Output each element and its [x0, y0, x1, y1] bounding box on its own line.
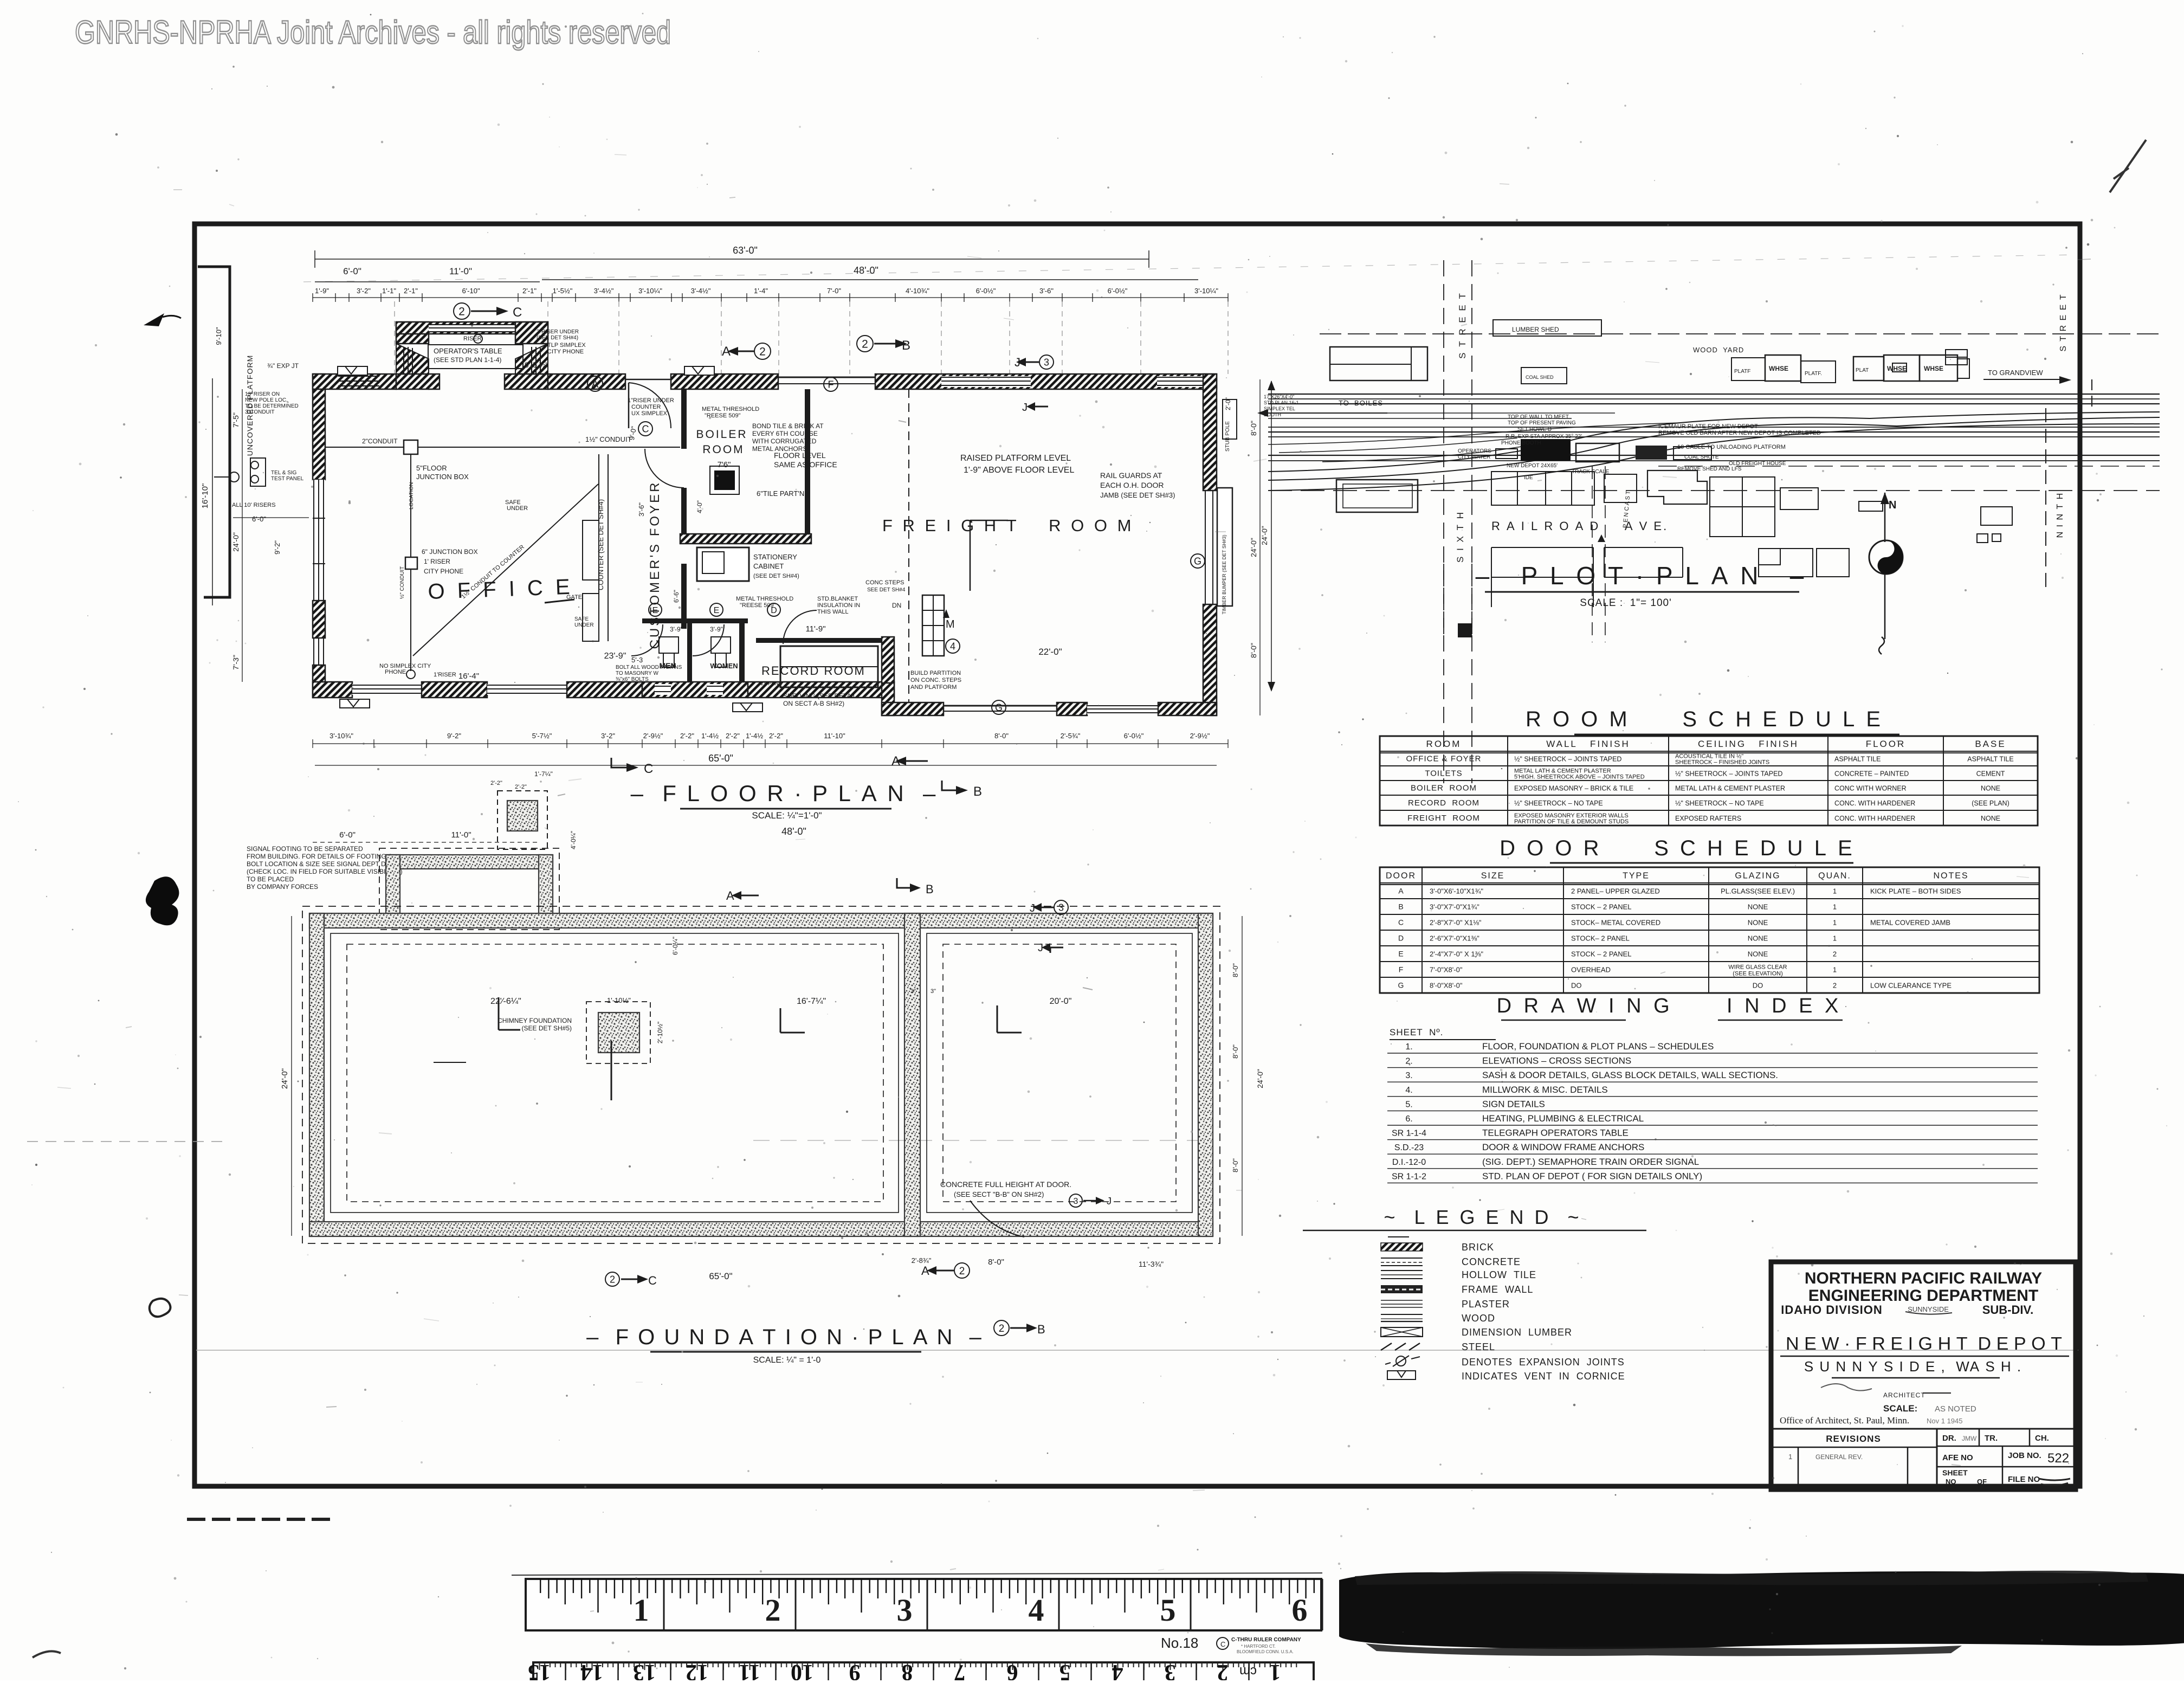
svg-text:3: 3 — [1074, 1197, 1078, 1206]
svg-text:2'-1": 2'-1" — [404, 287, 418, 295]
svg-text:CONC. WITH HARDENER: CONC. WITH HARDENER — [1834, 815, 1915, 822]
svg-text:E: E — [714, 606, 720, 615]
svg-text:SHELVING (SEE DETAIL: SHELVING (SEE DETAIL — [783, 692, 857, 700]
svg-text:SIGNAL FOOTING TO BE SEPARATED: SIGNAL FOOTING TO BE SEPARATED — [247, 845, 363, 853]
svg-text:F: F — [828, 379, 834, 390]
svg-text:1'-1": 1'-1" — [382, 287, 396, 295]
svg-text:TYPE: TYPE — [1623, 872, 1650, 881]
svg-text:10 CABLE TO UNLOADING PLATFORM: 10 CABLE TO UNLOADING PLATFORM — [1677, 444, 1786, 450]
svg-text:CABINET: CABINET — [753, 562, 784, 570]
svg-text:ON SECT A-B SH#2): ON SECT A-B SH#2) — [783, 700, 844, 707]
svg-text:EACH O.H. DOOR: EACH O.H. DOOR — [1100, 481, 1164, 489]
svg-text:6'-0": 6'-0" — [252, 515, 266, 523]
svg-text:SEE DET SH#4: SEE DET SH#4 — [867, 587, 906, 593]
svg-text:5.: 5. — [1405, 1100, 1412, 1109]
svg-text:NONE: NONE — [1748, 903, 1768, 911]
svg-text:CUSTOMER'S FOYER: CUSTOMER'S FOYER — [648, 481, 662, 649]
svg-text:NORTHERN PACIFIC RAILWAY: NORTHERN PACIFIC RAILWAY — [1805, 1269, 2042, 1287]
svg-text:WHSE: WHSE — [1769, 365, 1788, 372]
svg-text:B: B — [926, 882, 934, 896]
svg-text:3"CONDUIT: 3"CONDUIT — [245, 409, 275, 415]
svg-text:1'-4½: 1'-4½ — [746, 732, 763, 740]
svg-text:INSULATION IN: INSULATION IN — [817, 602, 860, 609]
svg-text:4'-0¼": 4'-0¼" — [570, 831, 577, 849]
svg-text:CONC WITH WORNER: CONC WITH WORNER — [1834, 785, 1907, 792]
svg-text:SIGN DETAILS: SIGN DETAILS — [1482, 1099, 1545, 1109]
svg-text:GNRHS-NPRHA Joint Archives - a: GNRHS-NPRHA Joint Archives - all rights … — [75, 14, 671, 50]
svg-text:UNDER: UNDER — [574, 622, 594, 628]
svg-text:J: J — [1022, 402, 1028, 414]
svg-text:AND PLATFORM: AND PLATFORM — [910, 684, 957, 691]
svg-text:AFE NO: AFE NO — [1942, 1453, 1973, 1462]
svg-text:6'-0": 6'-0" — [339, 830, 356, 840]
svg-text:2'-2": 2'-2" — [490, 780, 502, 786]
svg-text:COAL SHED: COAL SHED — [1526, 375, 1554, 380]
svg-text:GENERAL REV.: GENERAL REV. — [1815, 1453, 1863, 1461]
svg-text:ON CONC. STEPS: ON CONC. STEPS — [910, 677, 961, 683]
svg-text:ROOM: ROOM — [702, 443, 744, 456]
svg-text:24'-0": 24'-0" — [231, 532, 240, 552]
svg-text:RAISED PLATFORM LEVEL: RAISED PLATFORM LEVEL — [960, 454, 1071, 463]
svg-text:NONE: NONE — [1748, 934, 1768, 943]
svg-text:OVERHEAD: OVERHEAD — [1571, 966, 1611, 974]
svg-text:3'-2": 3'-2" — [601, 732, 615, 740]
svg-text:3'-10¼": 3'-10¼" — [1194, 287, 1218, 295]
svg-text:SIMPLEX TEL: SIMPLEX TEL — [1264, 406, 1295, 411]
svg-text:ASPHALT TILE: ASPHALT TILE — [1967, 756, 2013, 763]
svg-text:TO BE DETERMINED: TO BE DETERMINED — [245, 403, 299, 409]
svg-text:(SEE PLAN): (SEE PLAN) — [1972, 799, 2009, 807]
svg-text:1.: 1. — [1405, 1042, 1412, 1052]
svg-text:THIS WALL: THIS WALL — [817, 609, 849, 615]
svg-text:½" SHEETROCK – JOINTS TAPED: ½" SHEETROCK – JOINTS TAPED — [1514, 756, 1621, 763]
svg-text:B: B — [973, 784, 982, 799]
svg-text:SAME AS OFFICE: SAME AS OFFICE — [774, 460, 837, 469]
svg-text:G: G — [1398, 981, 1404, 990]
svg-text:SHEETROCK – FINISHED JOINTS: SHEETROCK – FINISHED JOINTS — [1675, 759, 1769, 766]
svg-text:S U N N Y S I D E , WA S H .: S U N N Y S I D E , WA S H . — [1804, 1358, 2022, 1375]
svg-text:22'⁄-6¼": 22'⁄-6¼" — [490, 997, 521, 1006]
svg-text:CITY PHONE: CITY PHONE — [547, 349, 584, 355]
svg-text:13' RISER ON: 13' RISER ON — [245, 391, 280, 397]
svg-text:(SEE DET SH#4): (SEE DET SH#4) — [753, 573, 799, 579]
svg-text:RAIL GUARDS AT: RAIL GUARDS AT — [1100, 471, 1162, 480]
svg-text:9'-2": 9'-2" — [273, 540, 281, 554]
svg-text:NOTES: NOTES — [1933, 872, 1968, 881]
svg-text:1: 1 — [1833, 903, 1837, 911]
svg-text:3'-4½": 3'-4½" — [691, 287, 711, 295]
svg-text:BOILER: BOILER — [696, 428, 747, 441]
svg-text:– P L O T · P L A N –: – P L O T · P L A N – — [1476, 562, 1807, 590]
svg-text:PLAT: PLAT — [1856, 367, 1869, 373]
svg-text:UX SIMPLEX: UX SIMPLEX — [631, 410, 668, 417]
svg-text:OFFICE & FOYER: OFFICE & FOYER — [1406, 755, 1481, 764]
svg-text:G: G — [995, 702, 1003, 713]
svg-text:COUNTER: COUNTER — [631, 404, 661, 410]
svg-text:– F L O O R · P L A N –: – F L O O R · P L A N – — [631, 781, 938, 806]
svg-text:N: N — [1889, 499, 1896, 511]
svg-text:2 PANEL– UPPER GLAZED: 2 PANEL– UPPER GLAZED — [1571, 887, 1660, 895]
svg-text:ALL 10' RISERS: ALL 10' RISERS — [232, 502, 276, 508]
svg-text:JMW: JMW — [1962, 1435, 1977, 1442]
svg-text:4.: 4. — [1405, 1086, 1412, 1095]
svg-text:3'-9": 3'-9" — [670, 626, 683, 633]
svg-text:DOOR: DOOR — [1386, 872, 1416, 881]
svg-text:FILE NO: FILE NO — [2008, 1475, 2040, 1484]
svg-text:7'6": 7'6" — [718, 460, 731, 469]
svg-text:2'-1": 2'-1" — [522, 287, 537, 295]
svg-text:1'-9" ABOVE FLOOR LEVEL: 1'-9" ABOVE FLOOR LEVEL — [964, 466, 1074, 475]
svg-text:FRAME WALL: FRAME WALL — [1462, 1284, 1533, 1295]
svg-text:6'-6": 6'-6" — [673, 590, 680, 603]
svg-text:DO: DO — [1571, 982, 1582, 990]
svg-text:4: 4 — [950, 641, 955, 652]
svg-text:KICK PLATE – BOTH SIDES: KICK PLATE – BOTH SIDES — [1870, 887, 1961, 895]
svg-text:3'-6": 3'-6" — [1039, 287, 1054, 295]
svg-text:SCALE:: SCALE: — [1883, 1403, 1917, 1414]
svg-text:SIZE: SIZE — [1481, 872, 1505, 881]
svg-text:M: M — [946, 618, 955, 630]
svg-text:3'-6": 3'-6" — [637, 502, 645, 517]
svg-text:6: 6 — [1292, 1592, 1308, 1628]
svg-text:O F F I C E: O F F I C E — [428, 575, 574, 604]
svg-text:8'-0": 8'-0" — [1231, 963, 1239, 977]
svg-text:TO BE PLACED: TO BE PLACED — [247, 875, 294, 883]
svg-text:CONCRETE – PAINTED: CONCRETE – PAINTED — [1834, 770, 1909, 778]
svg-text:TIMBER BUMPER (SEE DET SH#3): TIMBER BUMPER (SEE DET SH#3) — [1222, 535, 1227, 615]
svg-text:5'-3: 5'-3 — [631, 656, 643, 664]
svg-text:6.: 6. — [1405, 1114, 1412, 1124]
svg-text:WOOD: WOOD — [1462, 1313, 1495, 1324]
svg-text:48'-0": 48'-0" — [781, 826, 806, 837]
svg-text:STOCK – 2 PANEL: STOCK – 2 PANEL — [1571, 903, 1632, 911]
svg-text:8'-0": 8'-0" — [1249, 643, 1258, 658]
svg-text:⅜"x6" BOLTS: ⅜"x6" BOLTS — [616, 676, 649, 682]
svg-text:1'-5½": 1'-5½" — [553, 287, 573, 295]
svg-text:2: 2 — [1833, 982, 1837, 990]
svg-text:J: J — [1038, 942, 1043, 954]
svg-text:6'-0½": 6'-0½" — [976, 287, 996, 295]
svg-text:3'-10¾": 3'-10¾" — [329, 732, 353, 740]
svg-text:TOP OF PRESENT PAVING: TOP OF PRESENT PAVING — [1508, 420, 1576, 426]
svg-text:SCALE: ¼" = 1'-0: SCALE: ¼" = 1'-0 — [753, 1356, 821, 1365]
svg-text:¾" EXP JT: ¾" EXP JT — [267, 362, 299, 370]
svg-text:4'-0": 4'-0" — [696, 500, 703, 513]
svg-text:METAL THRESHOLD: METAL THRESHOLD — [702, 406, 759, 412]
svg-text:2'-0": 2'-0" — [1224, 397, 1232, 410]
svg-text:N I N T H: N I N T H — [2056, 492, 2065, 538]
svg-text:CH.: CH. — [2035, 1434, 2049, 1443]
svg-text:* HARTFORD CT.: * HARTFORD CT. — [1241, 1644, 1276, 1649]
svg-text:20'-0": 20'-0" — [1050, 997, 1072, 1006]
svg-text:NONE: NONE — [1981, 815, 2000, 822]
svg-text:1½" CONDUIT: 1½" CONDUIT — [585, 435, 632, 443]
svg-text:8'-0": 8'-0" — [1249, 421, 1258, 436]
svg-text:COAL SHUTE: COAL SHUTE — [1684, 454, 1719, 460]
svg-text:BRICK: BRICK — [1462, 1242, 1494, 1253]
svg-text:ICEMAUR PLATE FOR NEW DEPOT: ICEMAUR PLATE FOR NEW DEPOT — [1658, 423, 1758, 430]
svg-text:6'-0¼": 6'-0¼" — [671, 937, 679, 955]
svg-text:2: 2 — [999, 1323, 1005, 1334]
svg-text:G: G — [1194, 556, 1201, 566]
svg-text:"REESE 509": "REESE 509" — [740, 602, 776, 609]
svg-text:8'-0": 8'-0" — [1231, 1158, 1239, 1172]
svg-text:CONCRETE FULL HEIGHT AT DO: CONCRETE FULL HEIGHT AT DOOR. — [940, 1180, 1071, 1189]
svg-text:TOP OF WALL TO MEET: TOP OF WALL TO MEET — [1508, 414, 1569, 420]
svg-text:NEW DEPOT 24X65′: NEW DEPOT 24X65′ — [1507, 463, 1558, 469]
svg-text:3.: 3. — [1405, 1071, 1412, 1080]
svg-text:JOB NO.: JOB NO. — [2008, 1451, 2041, 1460]
svg-text:FLOOR, FOUNDATION & PLOT PLAN: FLOOR, FOUNDATION & PLOT PLANS – SCHEDUL… — [1482, 1041, 1714, 1052]
svg-text:BOND TILE & BRICK AT: BOND TILE & BRICK AT — [752, 422, 824, 430]
svg-text:B: B — [1398, 902, 1403, 911]
svg-text:BOOTH: BOOTH — [1264, 412, 1281, 417]
svg-text:BOLT ALL WOOD PARTNS: BOLT ALL WOOD PARTNS — [616, 665, 682, 670]
svg-text:5: 5 — [1160, 1592, 1176, 1628]
svg-text:C: C — [513, 305, 522, 320]
svg-text:CITY PHONE: CITY PHONE — [424, 568, 463, 575]
svg-text:6" JUNCTION BOX: 6" JUNCTION BOX — [422, 548, 478, 556]
svg-text:D.I.-12-0: D.I.-12-0 — [1392, 1158, 1426, 1167]
svg-text:INDICATES VENT IN CORNICE: INDICATES VENT IN CORNICE — [1462, 1371, 1625, 1382]
svg-text:9'-2": 9'-2" — [447, 732, 461, 740]
svg-text:6'-0": 6'-0" — [343, 266, 361, 276]
svg-text:16'-4": 16'-4" — [458, 672, 479, 681]
svg-text:NO: NO — [1946, 1478, 1956, 1486]
svg-text:DENOTES EXPANSION JOINTS: DENOTES EXPANSION JOINTS — [1462, 1357, 1625, 1368]
svg-text:CONC. WITH HARDENER: CONC. WITH HARDENER — [1834, 799, 1915, 807]
svg-text:OPERATOR'S TABLE: OPERATOR'S TABLE — [434, 347, 502, 355]
svg-text:2'-5¾": 2'-5¾" — [1061, 732, 1081, 740]
svg-text:F R E I G H T R O O M: F R E I G H T R O O M — [882, 516, 1134, 535]
svg-text:IDE: IDE — [1524, 475, 1533, 481]
svg-text:RECORD ROOM: RECORD ROOM — [1408, 798, 1479, 808]
svg-text:2'-9½": 2'-9½" — [643, 732, 663, 740]
svg-text:6'-0½": 6'-0½" — [1108, 287, 1128, 295]
svg-text:65'-0": 65'-0" — [709, 1271, 732, 1281]
svg-text:FLOOR: FLOOR — [1866, 739, 1906, 749]
svg-text:AS NOTED: AS NOTED — [1935, 1404, 1976, 1414]
svg-text:4'-10¾": 4'-10¾" — [906, 287, 929, 295]
svg-text:(SEE ELEVATION): (SEE ELEVATION) — [1733, 971, 1783, 977]
svg-text:C-THRU RULER COMPANY: C-THRU RULER COMPANY — [1231, 1637, 1301, 1643]
svg-text:23'-9": 23'-9" — [604, 652, 626, 661]
svg-text:½" SHEETROCK – NO TAPE: ½" SHEETROCK – NO TAPE — [1514, 799, 1603, 807]
svg-text:METAL THRESHOLD: METAL THRESHOLD — [736, 596, 793, 602]
svg-text:DOOR & WINDOW FRAME ANCHORS: DOOR & WINDOW FRAME ANCHORS — [1482, 1142, 1644, 1152]
svg-text:STEEL: STEEL — [1462, 1342, 1495, 1352]
svg-text:ENGINEERING DEPARTMENT: ENGINEERING DEPARTMENT — [1808, 1287, 2038, 1305]
svg-text:ARCHITECT: ARCHITECT — [1883, 1391, 1925, 1399]
svg-text:2: 2 — [610, 1274, 615, 1285]
svg-text:LOW CLEARANCE TYPE: LOW CLEARANCE TYPE — [1870, 982, 1952, 990]
svg-text:7'-0"X8'-0": 7'-0"X8'-0" — [1430, 966, 1463, 974]
svg-text:6'-0½": 6'-0½" — [1124, 732, 1144, 740]
svg-text:PHONE: PHONE — [385, 669, 406, 675]
svg-text:1'-7¼": 1'-7¼" — [534, 770, 553, 778]
svg-text:12x PANE: 12x PANE — [758, 681, 783, 687]
svg-text:2: 2 — [458, 306, 465, 318]
svg-text:SR 1-1-4: SR 1-1-4 — [1392, 1129, 1426, 1138]
svg-text:A: A — [1398, 887, 1404, 895]
svg-text:BY COMPANY FORCES: BY COMPANY FORCES — [247, 883, 318, 891]
svg-text:1: 1 — [1833, 934, 1837, 943]
svg-text:1: 1 — [1833, 966, 1837, 974]
svg-text:1: 1 — [1833, 919, 1837, 927]
svg-text:STOCK– 2 PANEL: STOCK– 2 PANEL — [1571, 934, 1630, 943]
svg-text:CHIMNEY FOUNDATION: CHIMNEY FOUNDATION — [497, 1017, 572, 1024]
svg-text:SHEET: SHEET — [1942, 1468, 1968, 1477]
svg-text:REVISIONS: REVISIONS — [1826, 1434, 1881, 1444]
svg-text:F: F — [1399, 965, 1404, 974]
svg-text:24'-0": 24'-0" — [1256, 1069, 1264, 1088]
svg-text:6'-10": 6'-10" — [462, 287, 480, 295]
svg-text:11'-0": 11'-0" — [451, 830, 471, 840]
svg-text:24'-0": 24'-0" — [1249, 538, 1258, 557]
svg-text:TO MASONRY W: TO MASONRY W — [616, 670, 658, 676]
svg-text:R A I L R O A D A V E.: R A I L R O A D A V E. — [1491, 519, 1668, 533]
svg-text:1' RISER: 1' RISER — [424, 558, 450, 565]
svg-text:R.R. EXP STA APPROX 35° 22′: R.R. EXP STA APPROX 35° 22′ — [1505, 434, 1582, 440]
svg-text:SUB-DIV.: SUB-DIV. — [1982, 1303, 2034, 1317]
svg-text:3'-2": 3'-2" — [357, 287, 371, 295]
svg-text:EXPOSED MASONRY – BRICK & TILE: EXPOSED MASONRY – BRICK & TILE — [1514, 785, 1633, 792]
svg-text:2"CONDUIT: 2"CONDUIT — [362, 437, 398, 445]
svg-text:3'-9": 3'-9" — [710, 626, 723, 633]
svg-text:PLATF.: PLATF. — [1805, 371, 1822, 377]
svg-text:STD.BLANKET: STD.BLANKET — [817, 596, 858, 602]
svg-text:B: B — [902, 338, 910, 353]
svg-text:1'-4": 1'-4" — [754, 287, 768, 295]
svg-text:METAL COVERED JAMB: METAL COVERED JAMB — [1870, 919, 1950, 927]
svg-text:5'-7½": 5'-7½" — [532, 732, 552, 740]
svg-text:11'-0": 11'-0" — [449, 266, 472, 276]
svg-text:DN: DN — [892, 602, 901, 609]
svg-text:SR 1-1-2: SR 1-1-2 — [1392, 1172, 1426, 1181]
svg-text:2'-10½": 2'-10½" — [656, 1022, 664, 1044]
svg-text:1'RISER: 1'RISER — [434, 672, 456, 678]
svg-text:No.18: No.18 — [1161, 1635, 1198, 1651]
svg-text:8'-0": 8'-0" — [988, 1258, 1004, 1267]
svg-text:3: 3 — [1044, 357, 1049, 367]
svg-text:LUMBER SHED: LUMBER SHED — [1512, 326, 1559, 333]
svg-text:EXPOSED RAFTERS: EXPOSED RAFTERS — [1675, 815, 1741, 822]
svg-text:½" SHEETROCK – NO TAPE: ½" SHEETROCK – NO TAPE — [1675, 799, 1764, 807]
svg-text:TELEGRAPH OPERATORS TABLE: TELEGRAPH OPERATORS TABLE — [1482, 1128, 1629, 1138]
svg-text:FROM BUILDING. FOR DETAILS OF: FROM BUILDING. FOR DETAILS OF FOOTING & — [247, 853, 392, 860]
svg-text:NONE: NONE — [1981, 785, 2000, 792]
svg-text:HOLLOW TILE: HOLLOW TILE — [1462, 1269, 1536, 1280]
svg-text:OF: OF — [1977, 1478, 1987, 1486]
svg-text:NONE: NONE — [1748, 950, 1768, 958]
svg-text:PHONE BOOTH: PHONE BOOTH — [1501, 440, 1541, 446]
svg-text:REMOVE OLD BARN AFTER NEW DE: REMOVE OLD BARN AFTER NEW DEPOT IS COMPL… — [1658, 430, 1821, 436]
svg-text:D: D — [1398, 934, 1404, 943]
svg-text:BUILD PARTITION: BUILD PARTITION — [910, 670, 961, 676]
svg-text:2'-2": 2'-2" — [680, 732, 694, 740]
svg-text:65'-0": 65'-0" — [708, 753, 733, 764]
svg-text:CONCRETE: CONCRETE — [1462, 1256, 1521, 1267]
svg-text:1: 1 — [1833, 887, 1837, 895]
svg-text:METAL LATH & CEMENT PLASTER: METAL LATH & CEMENT PLASTER — [1675, 785, 1785, 792]
svg-text:3'-10¼": 3'-10¼" — [638, 287, 662, 295]
svg-text:2'-6"X7'-0"X1⅜": 2'-6"X7'-0"X1⅜" — [1430, 934, 1479, 943]
svg-text:JAMB (SEE DET SH#3): JAMB (SEE DET SH#3) — [1100, 491, 1175, 499]
svg-text:PLASTER: PLASTER — [1462, 1299, 1510, 1310]
svg-text:DIMENSION LUMBER: DIMENSION LUMBER — [1462, 1327, 1572, 1338]
svg-text:IDAHO DIVISION: IDAHO DIVISION — [1781, 1303, 1883, 1317]
svg-text:3": 3" — [931, 988, 936, 995]
svg-text:JUNCTION BOX: JUNCTION BOX — [416, 473, 469, 481]
svg-text:24'-0": 24'-0" — [1260, 526, 1269, 545]
svg-text:STD PLAN 16-1: STD PLAN 16-1 — [1264, 400, 1299, 405]
svg-text:SCALE : 1"= 100': SCALE : 1"= 100' — [1580, 597, 1671, 609]
svg-text:1"RISER UNDER: 1"RISER UNDER — [628, 397, 674, 404]
svg-text:3'-0"X7'-0"X1¾": 3'-0"X7'-0"X1¾" — [1430, 903, 1479, 911]
svg-text:SCALE: ¼"=1'-0": SCALE: ¼"=1'-0" — [752, 810, 822, 821]
svg-text:7'-3": 7'-3" — [231, 655, 240, 670]
svg-text:B: B — [1037, 1323, 1045, 1336]
svg-text:COUNTER (SEE DET SH#4): COUNTER (SEE DET SH#4) — [597, 499, 605, 590]
svg-text:STATIONERY: STATIONERY — [753, 553, 797, 561]
svg-text:8'-0"X8'-0": 8'-0"X8'-0" — [1430, 982, 1463, 990]
svg-text:ROOM: ROOM — [1426, 739, 1462, 749]
svg-text:1: 1 — [634, 1592, 649, 1628]
svg-text:D O O R S C H E D U L E: D O O R S C H E D U L E — [1500, 836, 1855, 860]
svg-text:C: C — [1220, 1640, 1225, 1648]
svg-text:RECORD ROOM: RECORD ROOM — [761, 664, 865, 678]
svg-text:PARTITION OF TILE & DEMOUNT ST: PARTITION OF TILE & DEMOUNT STUDS — [1514, 818, 1629, 825]
svg-text:LOCATION: LOCATION — [409, 482, 415, 510]
svg-text:63'-0": 63'-0" — [733, 245, 758, 256]
svg-text:A: A — [592, 379, 599, 390]
svg-text:SET HOWE D: SET HOWE D — [1517, 427, 1552, 433]
svg-text:CITY WATER: CITY WATER — [1458, 454, 1490, 460]
svg-text:WALL FINISH: WALL FINISH — [1546, 739, 1630, 749]
svg-text:OPERATORS: OPERATORS — [1458, 448, 1491, 454]
svg-text:3: 3 — [1058, 902, 1064, 913]
svg-text:N E W · F R E I G H T D E P O: N E W · F R E I G H T D E P O T — [1786, 1333, 2062, 1353]
svg-text:2"RISER UNDER: 2"RISER UNDER — [537, 329, 579, 335]
svg-text:J: J — [1030, 902, 1035, 914]
svg-text:(SIG. DEPT.) SEMAPHORE TRAIN: (SIG. DEPT.) SEMAPHORE TRAIN ORDER SIGNA… — [1482, 1157, 1699, 1167]
svg-text:WITH CORRUGATED: WITH CORRUGATED — [752, 437, 817, 445]
svg-text:D R A W I N G I N D E X: D R A W I N G I N D E X — [1497, 995, 1842, 1017]
svg-text:3'-0"X6'-10"X1¾": 3'-0"X6'-10"X1¾" — [1430, 887, 1483, 895]
svg-text:8'-0": 8'-0" — [994, 732, 1009, 740]
svg-text:WOMEN: WOMEN — [710, 662, 738, 670]
svg-text:1'-10½": 1'-10½" — [607, 996, 631, 1004]
svg-text:2: 2 — [959, 1266, 965, 1277]
svg-text:8'-0": 8'-0" — [1231, 1044, 1239, 1059]
svg-text:CEMENT: CEMENT — [1976, 770, 2005, 778]
svg-text:TOILETS: TOILETS — [1425, 769, 1462, 778]
svg-text:S T R E E T: S T R E E T — [2059, 293, 2068, 351]
svg-text:9'-10": 9'-10" — [215, 327, 223, 345]
svg-text:UNDER: UNDER — [507, 505, 528, 512]
svg-text:(SEE DET SH#5): (SEE DET SH#5) — [522, 1024, 572, 1032]
svg-text:2'-2": 2'-2" — [726, 732, 740, 740]
svg-text:2: 2 — [862, 338, 868, 351]
svg-text:16'-7¼": 16'-7¼" — [797, 997, 826, 1006]
svg-text:EVERY 6TH COURSE: EVERY 6TH COURSE — [752, 430, 818, 437]
svg-text:NONE: NONE — [1748, 919, 1768, 927]
svg-text:PL.GLASS(SEE ELEV.): PL.GLASS(SEE ELEV.) — [1721, 887, 1795, 895]
svg-text:PLATF: PLATF — [1734, 369, 1750, 375]
svg-text:½" SHEETROCK – JOINTS TAPED: ½" SHEETROCK – JOINTS TAPED — [1675, 770, 1782, 778]
svg-text:WHSE: WHSE — [1887, 365, 1907, 372]
svg-text:WIRE GLASS CLEAR: WIRE GLASS CLEAR — [1728, 964, 1787, 971]
